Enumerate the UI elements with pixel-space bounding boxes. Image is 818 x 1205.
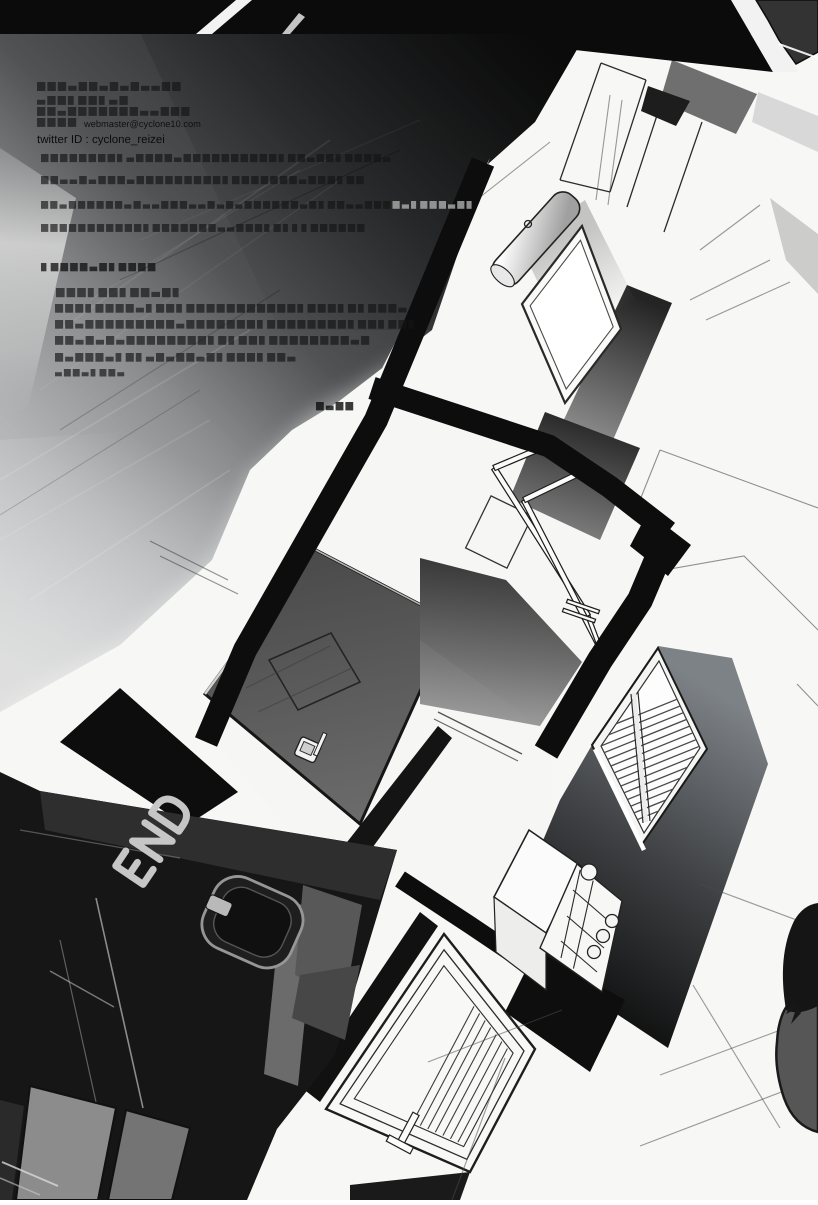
svg-text:twitter ID : cyclone_reizei: twitter ID : cyclone_reizei — [37, 134, 165, 146]
svg-text:webmaster@cyclone10.com: webmaster@cyclone10.com — [83, 119, 201, 129]
